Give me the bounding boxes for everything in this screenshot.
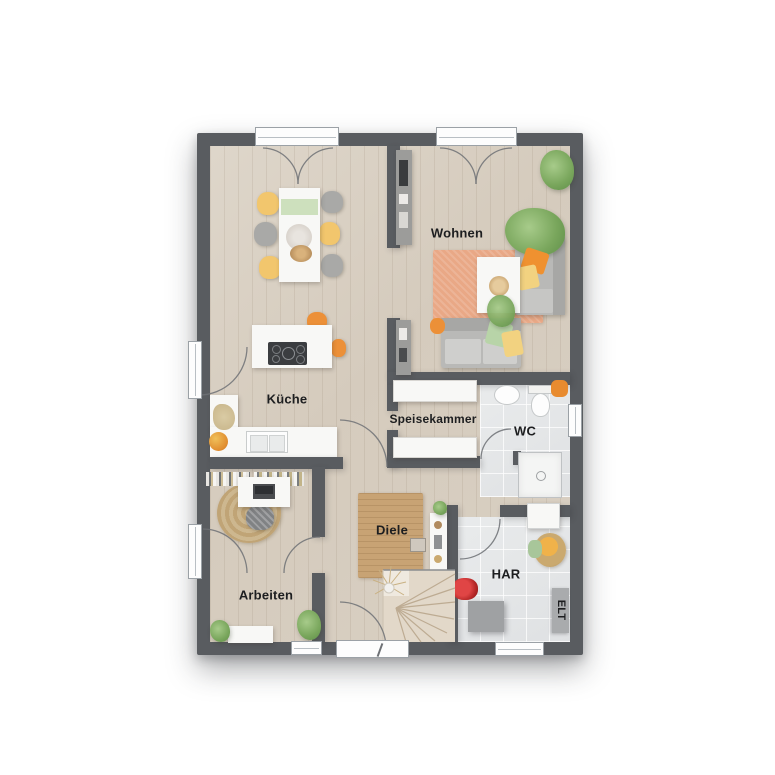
floor-plan: Wohnen Küche Speisekammer WC Diele Arbei… — [197, 133, 583, 655]
entry-door — [336, 640, 409, 658]
window-office-bottom — [291, 641, 322, 655]
window-living — [436, 127, 517, 146]
window-office-left — [188, 524, 202, 579]
window-kitchen-left — [188, 341, 202, 399]
room-label-kueche: Küche — [267, 392, 308, 407]
room-label-wc: WC — [514, 424, 536, 439]
door-swing-arcs — [199, 148, 512, 648]
window-wc-right — [568, 404, 582, 437]
room-label-elt: ELT — [555, 600, 567, 621]
room-label-arbeiten: Arbeiten — [239, 588, 293, 603]
floorplan-canvas: Wohnen Küche Speisekammer WC Diele Arbei… — [0, 0, 775, 775]
room-label-diele: Diele — [376, 523, 408, 538]
window-har-bottom — [495, 642, 544, 656]
window-dining — [255, 127, 339, 146]
door-swings-and-stairs — [197, 133, 583, 655]
room-label-har: HAR — [492, 567, 521, 582]
room-label-wohnen: Wohnen — [431, 226, 483, 241]
room-label-speisekammer: Speisekammer — [389, 412, 476, 426]
